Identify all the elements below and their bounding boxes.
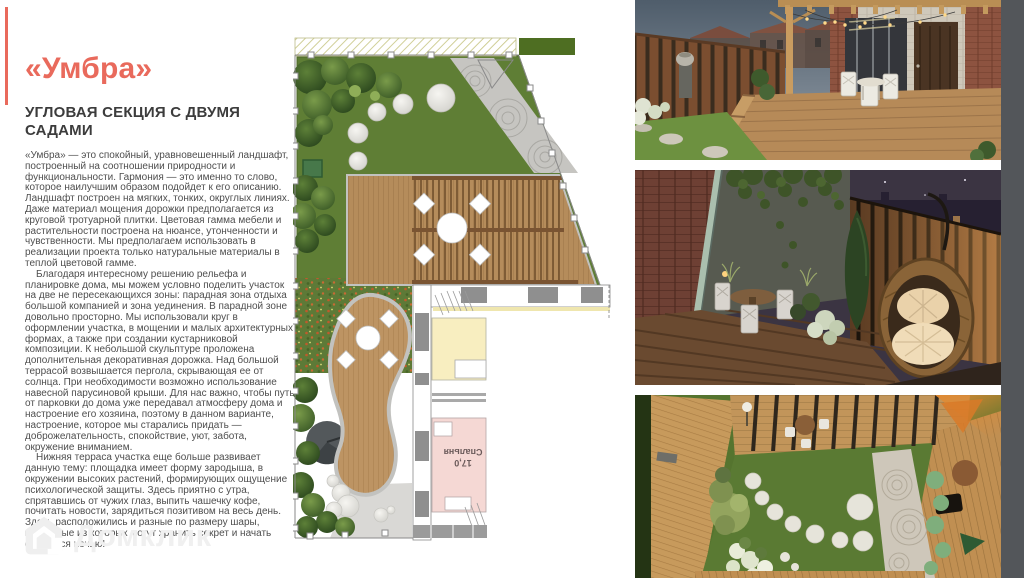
house-icon xyxy=(22,514,66,558)
master-plan-drawing: 17,0 Спальня xyxy=(293,33,627,545)
render-garden-topview xyxy=(635,395,1001,578)
description-text: «Умбра» — это спокойный, уравновешенный … xyxy=(25,151,297,550)
plan-main-deck xyxy=(347,175,596,285)
side-strip xyxy=(1001,0,1024,578)
accent-line xyxy=(5,7,8,105)
paragraph-1: «Умбра» — это спокойный, уравновешенный … xyxy=(25,151,297,270)
render-terrace-day xyxy=(635,0,1001,160)
plan-road-strip xyxy=(295,38,516,56)
plan-house-floorplan: 17,0 Спальня xyxy=(413,285,610,540)
render-garden-night xyxy=(635,170,1001,385)
domklik-watermark: Домклик xyxy=(22,514,212,558)
plan-room-bedroom: 17,0 Спальня xyxy=(432,418,486,512)
page-title: «Умбра» xyxy=(25,52,152,86)
plan-plunge-pool xyxy=(303,160,322,177)
deck-bottom xyxy=(695,571,925,578)
render-garden-night-art xyxy=(635,170,1001,385)
brochure-page: «Умбра» УГЛОВАЯ СЕКЦИЯ С ДВУМЯ САДАМИ «У… xyxy=(0,0,1024,578)
landscape-master-plan: 17,0 Спальня xyxy=(293,33,627,545)
paragraph-2: Благодаря интересному решению рельефа и … xyxy=(25,270,297,454)
plan-parking-green xyxy=(519,38,575,55)
room-area-label: 17,0 xyxy=(454,458,472,468)
hedge-edge xyxy=(635,395,651,578)
render-terrace-day-art xyxy=(635,0,1001,160)
render-garden-topview-art xyxy=(635,395,1001,578)
watermark-label: Домклик xyxy=(74,518,212,554)
plan-bean-deck xyxy=(330,295,410,495)
room-name-label: Спальня xyxy=(444,447,483,457)
page-subtitle: УГЛОВАЯ СЕКЦИЯ С ДВУМЯ САДАМИ xyxy=(25,104,270,141)
